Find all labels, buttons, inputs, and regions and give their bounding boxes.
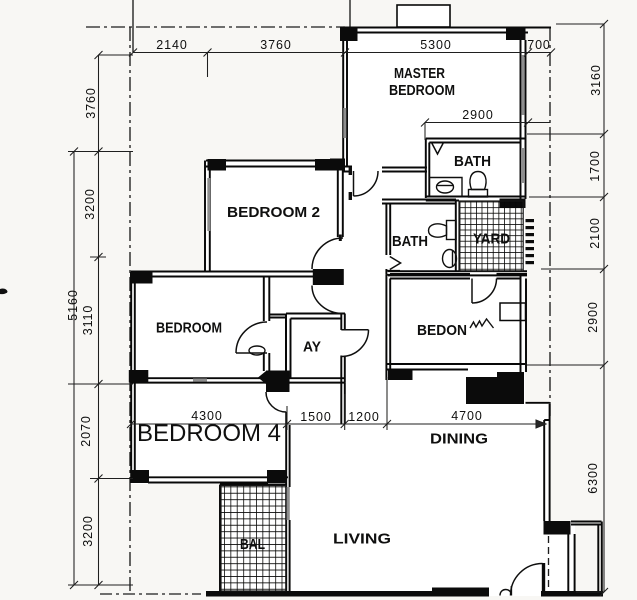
svg-text:BATH: BATH [454,153,491,170]
svg-text:3160: 3160 [589,64,603,95]
svg-text:2900: 2900 [462,108,493,122]
svg-text:MASTER: MASTER [394,65,445,82]
svg-text:2140: 2140 [156,38,187,52]
svg-text:BEDROOM 2: BEDROOM 2 [227,204,320,221]
svg-text:3110: 3110 [81,305,95,335]
svg-text:3760: 3760 [260,38,291,52]
svg-text:3760: 3760 [84,87,98,118]
svg-text:YARD: YARD [473,231,510,248]
svg-text:2070: 2070 [79,415,93,446]
svg-text:1500: 1500 [300,410,331,424]
svg-text:700: 700 [527,38,551,52]
svg-text:6300: 6300 [586,462,600,493]
svg-text:AY: AY [303,339,321,356]
svg-text:BEDROOM: BEDROOM [389,82,455,99]
svg-text:BATH: BATH [392,233,428,250]
svg-text:2900: 2900 [586,301,600,332]
svg-text:BEDROOM: BEDROOM [156,320,222,337]
svg-text:1200: 1200 [348,410,379,424]
svg-text:5300: 5300 [420,38,451,52]
svg-text:2100: 2100 [588,217,602,248]
svg-text:BEDROOM 4: BEDROOM 4 [137,420,281,447]
svg-text:1700: 1700 [588,150,602,181]
svg-text:4700: 4700 [451,409,482,423]
svg-text:BAL: BAL [240,536,265,553]
svg-text:3200: 3200 [81,515,95,546]
svg-text:BEDON: BEDON [417,322,467,339]
svg-text:LIVING: LIVING [333,531,391,548]
svg-text:3200: 3200 [83,188,97,219]
svg-text:DINING: DINING [430,431,488,448]
svg-text:5160: 5160 [66,289,80,320]
